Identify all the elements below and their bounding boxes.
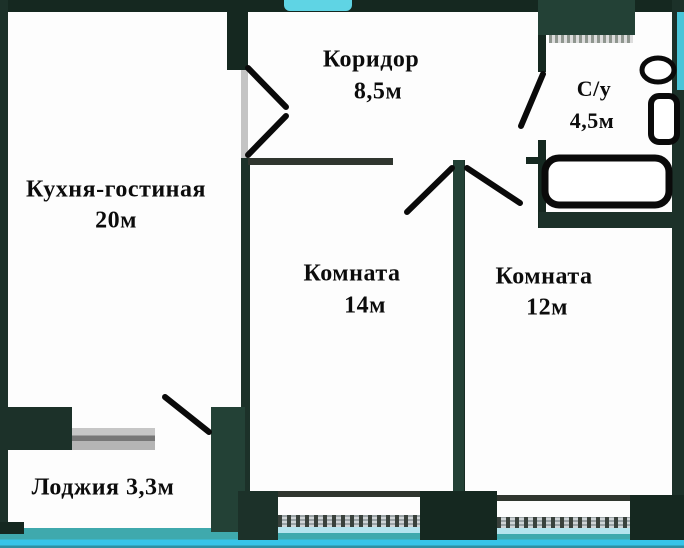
bathtub-icon xyxy=(545,158,669,205)
loggia-door-swing xyxy=(165,397,209,432)
bathroom-door-swing xyxy=(521,74,543,126)
toilet-icon xyxy=(642,58,674,82)
doors-and-fixtures-overlay xyxy=(0,0,684,548)
sink-icon xyxy=(651,96,677,142)
kitchen-door-swing-lower xyxy=(248,116,286,155)
room14-door-swing xyxy=(407,168,452,212)
room12-door-swing xyxy=(467,168,520,203)
floor-plan: Кухня-гостиная 20м Коридор 8,5м С/у 4,5м… xyxy=(0,0,684,548)
kitchen-door-swing-upper xyxy=(248,68,286,107)
